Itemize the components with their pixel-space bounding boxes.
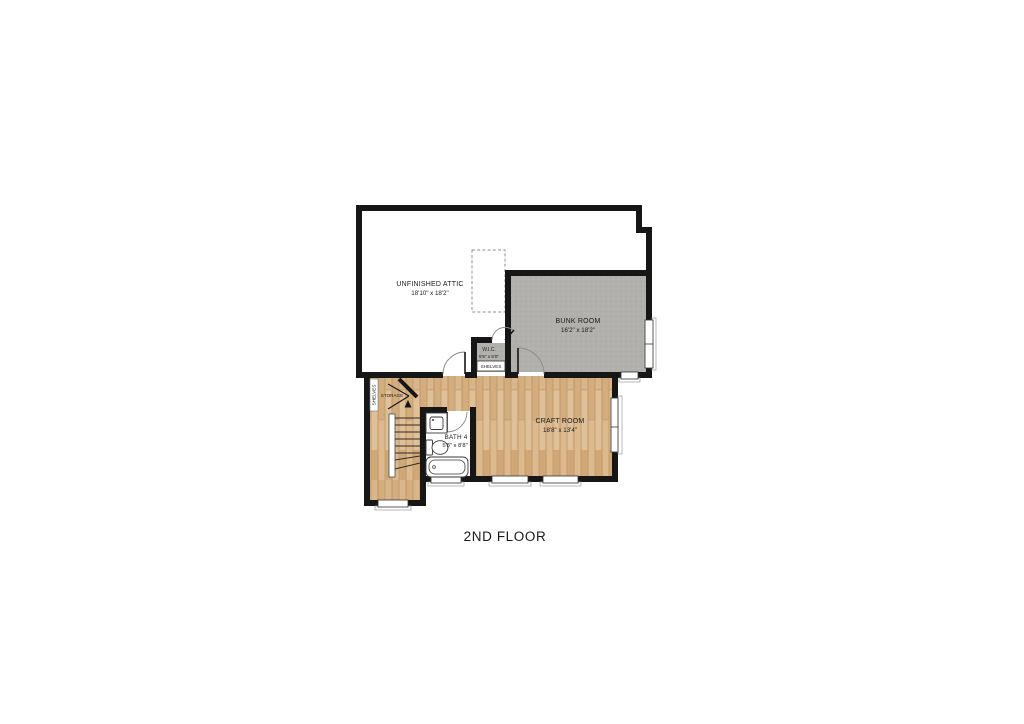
- bunk-room-name: BUNK ROOM: [556, 318, 601, 325]
- plan-title: 2ND FLOOR: [464, 529, 547, 544]
- storage-label: STORAGE: [381, 393, 403, 398]
- bath-room-dims: 5'8" x 8'8": [442, 443, 467, 449]
- stair-window: [378, 500, 408, 507]
- sink-basin: [430, 417, 443, 430]
- bath-room-name: BATH 4: [444, 434, 467, 441]
- attic-room-name: UNFINISHED ATTIC: [396, 281, 463, 288]
- stair-railing: [389, 414, 395, 477]
- floor-plan-drawing: SHELVES STORAGE SHELVES W.I.C. 5'5" x 5'…: [0, 0, 1024, 724]
- wic-room-name: W.I.C.: [482, 347, 496, 353]
- storage-shelves-label: SHELVES: [372, 385, 377, 406]
- sink-faucet: [432, 419, 434, 421]
- floor-plan-page: SHELVES STORAGE SHELVES W.I.C. 5'5" x 5'…: [0, 0, 1024, 724]
- bunk-window-south: [621, 372, 638, 379]
- attic-dashed-opening: [472, 250, 505, 312]
- craft-window-right: [543, 476, 578, 483]
- window-sill: [618, 396, 622, 454]
- wic-room-dims: 5'5" x 5'0": [479, 354, 499, 359]
- craft-room-name: CRAFT ROOM: [536, 418, 585, 425]
- craft-window-left: [492, 476, 528, 483]
- wic-shelves-label: SHELVES: [481, 364, 502, 369]
- attic-room-dims: 18'10" x 18'2": [411, 290, 448, 297]
- toilet-tank: [426, 440, 433, 455]
- craft-window-east: [611, 398, 618, 452]
- craft-room-dims: 18'8" x 13'4": [543, 427, 577, 434]
- bunk-room-dims: 16'2" x 18'2": [561, 327, 595, 334]
